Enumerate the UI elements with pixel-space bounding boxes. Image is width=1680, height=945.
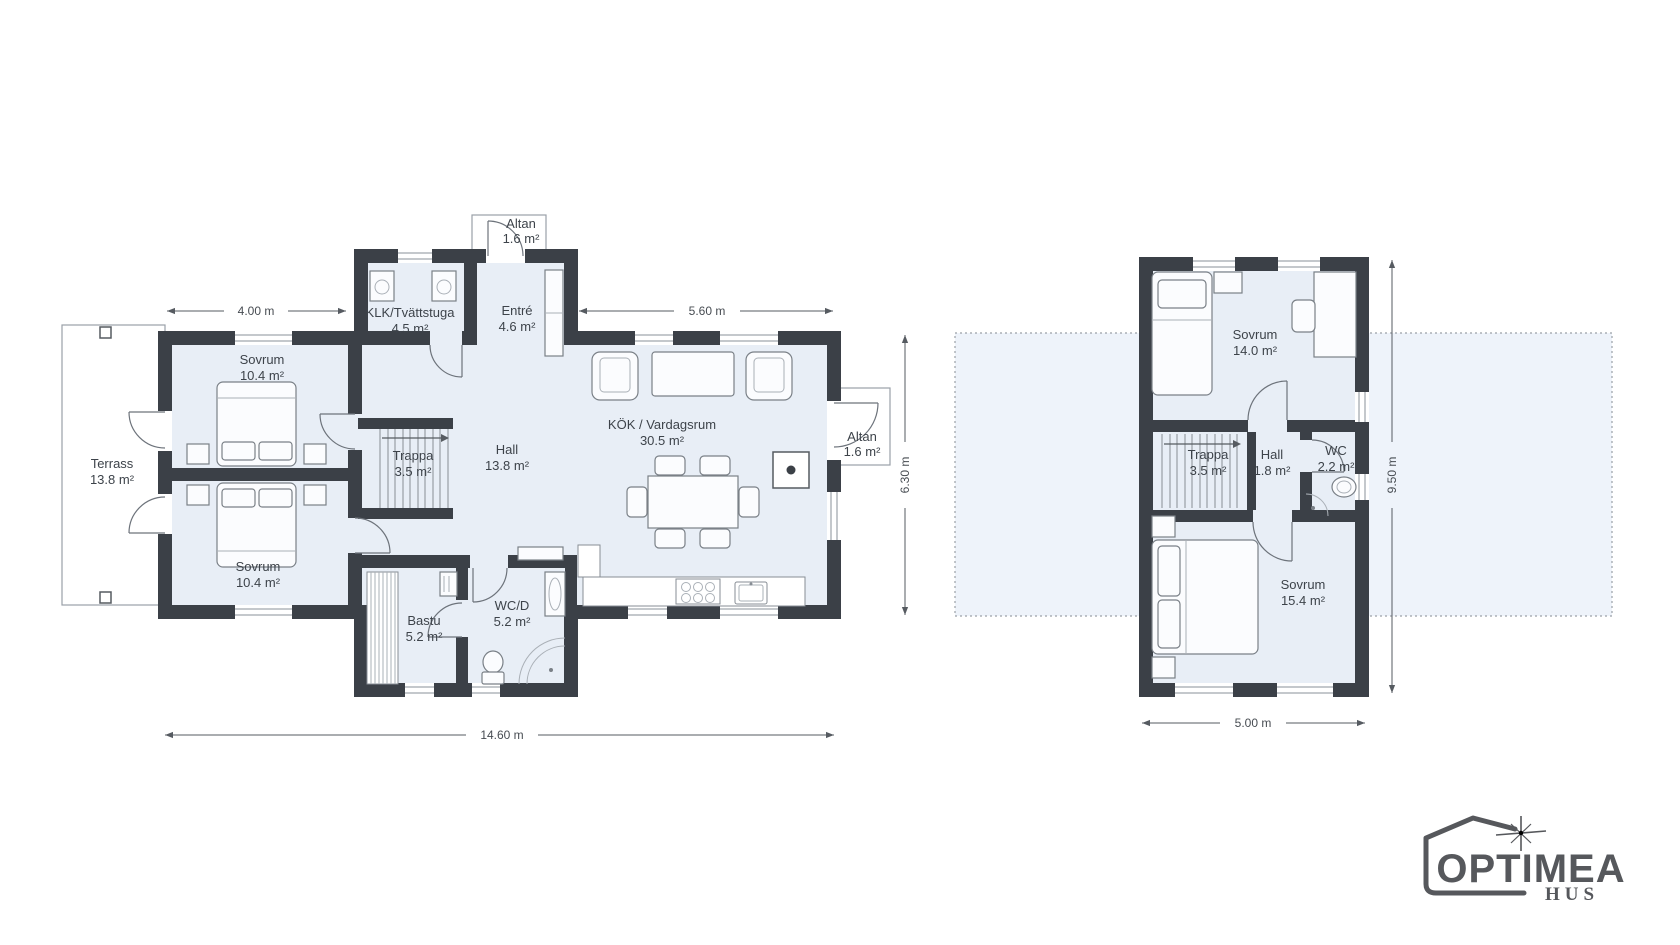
svg-text:Sovrum: Sovrum bbox=[236, 559, 281, 574]
window bbox=[235, 605, 292, 619]
room-label-trappa: Trappa 3.5 m² bbox=[393, 448, 434, 479]
svg-text:1.6 m²: 1.6 m² bbox=[503, 231, 541, 246]
window bbox=[1355, 474, 1369, 500]
window bbox=[720, 605, 778, 619]
svg-text:1.6 m²: 1.6 m² bbox=[844, 444, 882, 459]
window bbox=[405, 683, 434, 697]
sauna-heater-icon bbox=[440, 572, 457, 596]
window bbox=[1277, 683, 1333, 697]
bed-icon bbox=[1152, 516, 1258, 678]
svg-text:3.5 m²: 3.5 m² bbox=[395, 464, 433, 479]
floorplan-drawing: Terrass 13.8 m² Sovrum 10.4 m² KLK/Tvätt… bbox=[0, 0, 1680, 945]
svg-text:Hall: Hall bbox=[1261, 447, 1284, 462]
svg-text:13.8 m²: 13.8 m² bbox=[485, 458, 530, 473]
room-label-sovrum-top: Sovrum 14.0 m² bbox=[1233, 327, 1278, 358]
svg-text:5.00 m: 5.00 m bbox=[1235, 716, 1272, 730]
coffee-table-icon bbox=[652, 352, 734, 396]
svg-text:Bastu: Bastu bbox=[407, 613, 440, 628]
svg-text:9.50 m: 9.50 m bbox=[1385, 457, 1399, 494]
svg-text:Hall: Hall bbox=[496, 442, 519, 457]
ground-floor-plan: Terrass 13.8 m² Sovrum 10.4 m² KLK/Tvätt… bbox=[62, 215, 912, 742]
svg-text:14.60 m: 14.60 m bbox=[480, 728, 523, 742]
svg-text:2.2 m²: 2.2 m² bbox=[1318, 459, 1356, 474]
window bbox=[398, 249, 432, 263]
dimension-6-3m: 6.30 m bbox=[898, 335, 912, 615]
svg-text:WC: WC bbox=[1325, 443, 1347, 458]
svg-text:Sovrum: Sovrum bbox=[240, 352, 285, 367]
floorplan-canvas: Terrass 13.8 m² Sovrum 10.4 m² KLK/Tvätt… bbox=[0, 0, 1680, 945]
svg-text:Entré: Entré bbox=[501, 303, 532, 318]
washer-icon bbox=[370, 271, 394, 301]
window bbox=[635, 331, 673, 345]
dimension-9-5m: 9.50 m bbox=[1385, 260, 1399, 693]
closet-icon bbox=[545, 270, 563, 356]
svg-text:4.5 m²: 4.5 m² bbox=[392, 321, 430, 336]
room-label-altan-top: Altan 1.6 m² bbox=[503, 216, 541, 246]
svg-text:4.6 m²: 4.6 m² bbox=[499, 319, 537, 334]
wc-sink-icon bbox=[1332, 477, 1356, 497]
dimension-14-6m: 14.60 m bbox=[165, 728, 834, 742]
svg-text:Sovrum: Sovrum bbox=[1233, 327, 1278, 342]
window bbox=[1193, 257, 1235, 271]
room-label-sovrum-bottom: Sovrum 15.4 m² bbox=[1281, 577, 1326, 608]
dryer-icon bbox=[432, 271, 456, 301]
window bbox=[1355, 392, 1369, 422]
window bbox=[235, 331, 292, 345]
svg-text:6.30 m: 6.30 m bbox=[898, 457, 912, 494]
sauna-bench-icon bbox=[367, 572, 398, 684]
toilet-icon bbox=[482, 651, 504, 684]
svg-text:30.5 m²: 30.5 m² bbox=[640, 433, 685, 448]
armchair-icon bbox=[592, 352, 638, 400]
svg-text:Trappa: Trappa bbox=[393, 448, 434, 463]
dimension-5-6m: 5.60 m bbox=[579, 304, 833, 318]
dimension-5m: 5.00 m bbox=[1142, 716, 1365, 730]
svg-text:4.00 m: 4.00 m bbox=[238, 304, 275, 318]
room-label-sovrum-top: Sovrum 10.4 m² bbox=[240, 352, 285, 383]
svg-text:Terrass: Terrass bbox=[91, 456, 134, 471]
logo-sub-text: HUS bbox=[1545, 884, 1599, 905]
svg-text:15.4 m²: 15.4 m² bbox=[1281, 593, 1326, 608]
window bbox=[720, 331, 778, 345]
fireplace-icon bbox=[773, 452, 809, 488]
svg-text:13.8 m²: 13.8 m² bbox=[90, 472, 135, 487]
terrace-post bbox=[100, 327, 111, 338]
svg-text:Trappa: Trappa bbox=[1188, 447, 1229, 462]
window bbox=[1278, 257, 1320, 271]
svg-text:Altan: Altan bbox=[506, 216, 536, 231]
shelf-icon bbox=[518, 547, 563, 560]
window bbox=[827, 492, 841, 540]
room-label-wcd: WC/D 5.2 m² bbox=[494, 598, 532, 629]
stove-icon bbox=[676, 579, 720, 604]
sink-icon bbox=[735, 582, 767, 604]
room-label-trappa: Trappa 3.5 m² bbox=[1188, 447, 1229, 478]
room-label-sovrum-bottom: Sovrum 10.4 m² bbox=[236, 559, 281, 590]
terrace-post bbox=[100, 592, 111, 603]
dimension-4m: 4.00 m bbox=[167, 304, 346, 318]
svg-text:10.4 m²: 10.4 m² bbox=[240, 368, 285, 383]
svg-text:KLK/Tvättstuga: KLK/Tvättstuga bbox=[366, 305, 456, 320]
room-label-bastu: Bastu 5.2 m² bbox=[406, 613, 444, 644]
bathroom-sink-icon bbox=[545, 572, 565, 616]
svg-text:KÖK / Vardagsrum: KÖK / Vardagsrum bbox=[608, 417, 716, 432]
room-label-terrass: Terrass 13.8 m² bbox=[90, 456, 135, 487]
room-label-entre: Entré 4.6 m² bbox=[499, 303, 537, 334]
armchair-icon bbox=[746, 352, 792, 400]
svg-text:WC/D: WC/D bbox=[495, 598, 530, 613]
upper-floor-plan: Sovrum 14.0 m² Trappa 3.5 m² Hall 1.8 m²… bbox=[955, 257, 1612, 730]
window bbox=[1175, 683, 1233, 697]
window bbox=[472, 683, 500, 697]
svg-text:14.0 m²: 14.0 m² bbox=[1233, 343, 1278, 358]
svg-text:1.8 m²: 1.8 m² bbox=[1254, 463, 1292, 478]
svg-text:Sovrum: Sovrum bbox=[1281, 577, 1326, 592]
svg-text:Altan: Altan bbox=[847, 429, 877, 444]
svg-text:5.60 m: 5.60 m bbox=[689, 304, 726, 318]
window bbox=[628, 605, 667, 619]
svg-text:3.5 m²: 3.5 m² bbox=[1190, 463, 1228, 478]
room-label-altan-right: Altan 1.6 m² bbox=[844, 429, 882, 459]
svg-text:5.2 m²: 5.2 m² bbox=[494, 614, 532, 629]
svg-text:5.2 m²: 5.2 m² bbox=[406, 629, 444, 644]
logo: OPTIMEA HUS bbox=[1426, 816, 1626, 905]
sparkle-icon bbox=[1496, 816, 1546, 851]
svg-text:10.4 m²: 10.4 m² bbox=[236, 575, 281, 590]
